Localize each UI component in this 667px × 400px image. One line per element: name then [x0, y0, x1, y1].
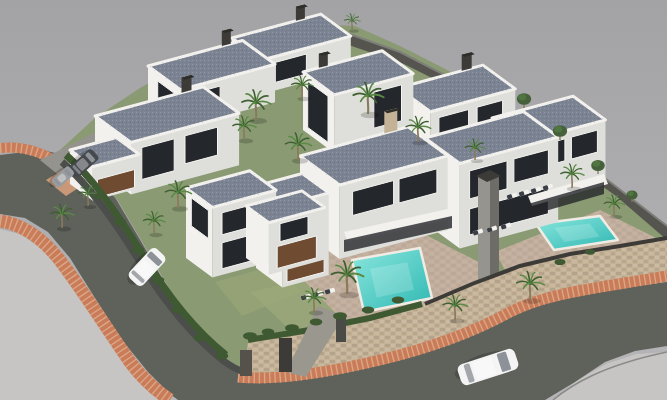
villa-south-west-wing [246, 191, 325, 275]
palm-trunk [314, 298, 315, 312]
palm-trunk [530, 284, 531, 300]
palm-shadow [449, 318, 464, 323]
bush [114, 219, 127, 226]
palm-trunk [178, 193, 179, 208]
bush [194, 335, 207, 342]
palm-trunk [244, 126, 245, 140]
bush [172, 307, 185, 314]
bush [132, 247, 145, 254]
palm-trunk [368, 96, 369, 114]
palm-shadow [610, 215, 623, 219]
architectural-render-viewport [0, 0, 667, 400]
palm-trunk [614, 204, 615, 216]
bush [216, 353, 229, 360]
tree-canopy-highlight [627, 191, 633, 196]
palm-shadow [471, 159, 484, 163]
palm-trunk [418, 128, 419, 142]
bush [94, 193, 107, 200]
palm-trunk [352, 21, 353, 30]
palm-trunk [347, 275, 348, 294]
palm-shadow [349, 29, 359, 32]
bush [554, 259, 565, 265]
bush [333, 312, 347, 320]
tree-canopy-highlight [554, 126, 562, 132]
palm-trunk [572, 174, 573, 188]
palm-shadow [309, 311, 323, 316]
palm-shadow [149, 233, 163, 238]
gate-pillar [336, 316, 346, 342]
palm-shadow [84, 205, 97, 209]
palm-shadow [361, 112, 380, 118]
palm-trunk [298, 145, 299, 160]
bush [362, 307, 375, 314]
villa-development-render [0, 0, 667, 400]
palm-shadow [523, 298, 540, 304]
palm-trunk [88, 194, 89, 206]
palm-trunk [154, 221, 155, 234]
palm-shadow [297, 97, 311, 102]
palm-shadow [339, 292, 359, 299]
bush [392, 297, 405, 304]
tree-canopy-highlight [592, 161, 600, 167]
palm-trunk [302, 85, 303, 98]
bush [585, 249, 595, 254]
palm-shadow [567, 187, 581, 192]
palm-shadow [172, 206, 188, 211]
palm-shadow [292, 158, 308, 163]
bush [285, 324, 299, 332]
palm-shadow [239, 139, 253, 144]
gate-pillar [279, 338, 292, 372]
bush [310, 319, 323, 326]
palm-shadow [412, 140, 427, 145]
palm-shadow [57, 227, 71, 232]
tree-canopy-highlight [518, 94, 526, 100]
palm-trunk [256, 103, 257, 120]
palm-trunk [62, 214, 63, 228]
bush [243, 332, 257, 340]
wall-corner-pillar [240, 350, 252, 376]
palm-trunk [455, 306, 456, 320]
palm-trunk [475, 148, 476, 160]
bush [152, 277, 165, 284]
bush [262, 329, 275, 336]
